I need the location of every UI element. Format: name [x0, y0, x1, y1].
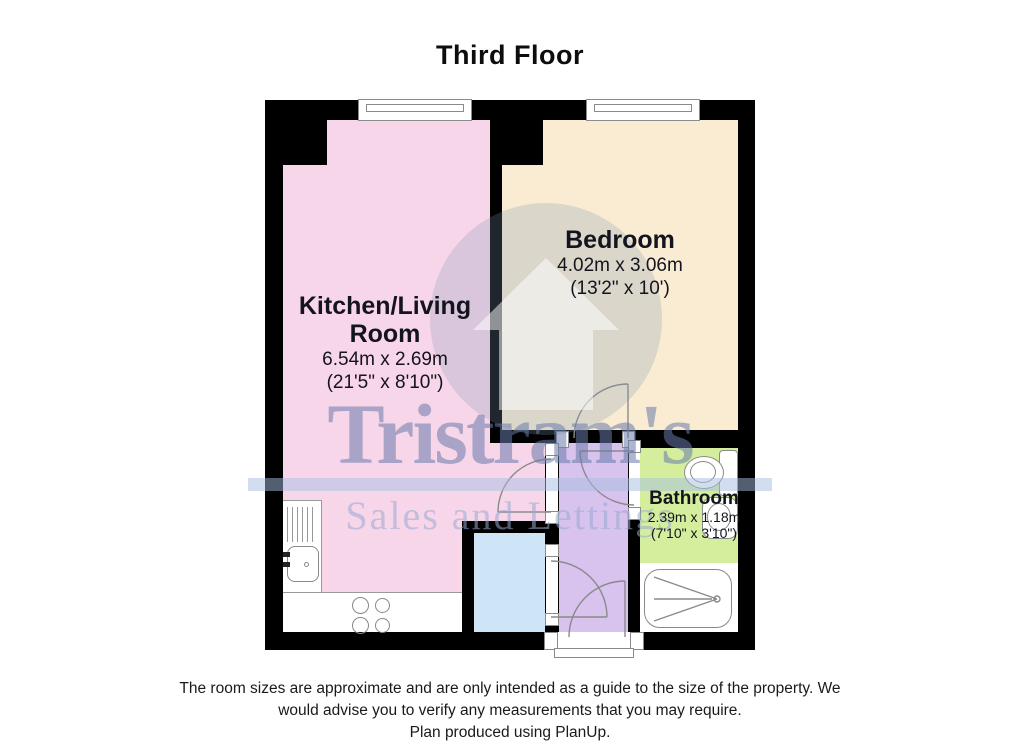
kitchen-label: Kitchen/Living Room 6.54m x 2.69m (21'5"…: [285, 292, 485, 394]
room-dims-imperial: (21'5" x 8'10"): [285, 371, 485, 394]
bath-lines: [654, 577, 717, 621]
watermark-brand: Tristram's: [245, 384, 775, 484]
room-dims-metric: 2.39m x 1.18m: [624, 509, 764, 525]
entrance-door-arc: [569, 581, 625, 637]
bathroom-label: Bathroom 2.39m x 1.18m (7'10" x 3'10"): [624, 488, 764, 541]
room-dims-metric: 4.02m x 3.06m: [520, 254, 720, 277]
room-name: Room: [285, 320, 485, 348]
room-dims-imperial: (7'10" x 3'10"): [624, 525, 764, 541]
room-dims-imperial: (13'2" x 10'): [520, 277, 720, 300]
room-name: Bathroom: [624, 488, 764, 509]
room-name: Bedroom: [520, 226, 720, 254]
storage-door-arc: [551, 561, 607, 617]
bedroom-label: Bedroom 4.02m x 3.06m (13'2" x 10'): [520, 226, 720, 300]
room-dims-metric: 6.54m x 2.69m: [285, 348, 485, 371]
floorplan-page: Third Floor: [0, 0, 1020, 742]
room-name: Kitchen/Living: [285, 292, 485, 320]
